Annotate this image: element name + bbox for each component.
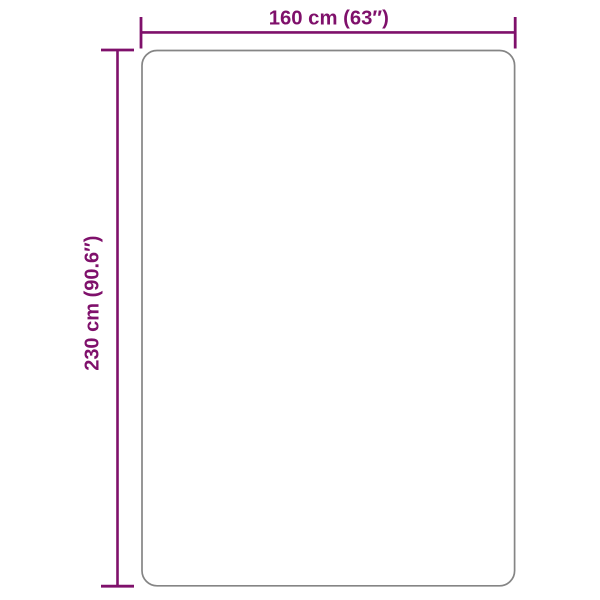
svg-text:160 cm (63″): 160 cm (63″) — [269, 7, 389, 29]
svg-text:230 cm (90.6″): 230 cm (90.6″) — [82, 236, 104, 371]
